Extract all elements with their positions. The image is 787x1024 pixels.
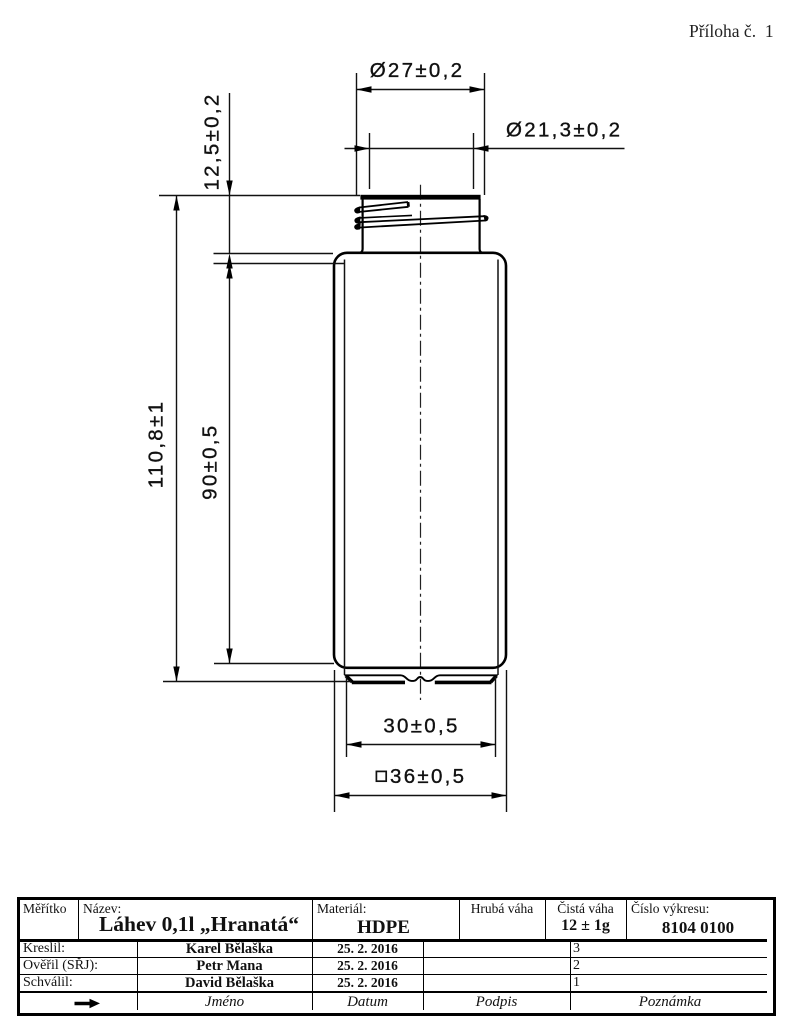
svg-text:110,8±1: 110,8±1 (145, 400, 168, 489)
svg-text:30±0,5: 30±0,5 (383, 715, 459, 738)
svg-text:Ø27±0,2: Ø27±0,2 (370, 59, 465, 82)
svg-text:90±0,5: 90±0,5 (199, 424, 222, 500)
svg-text:36±0,5: 36±0,5 (390, 765, 466, 788)
svg-text:Ø21,3±0,2: Ø21,3±0,2 (506, 119, 622, 142)
svg-text:12,5±0,2: 12,5±0,2 (201, 92, 224, 190)
